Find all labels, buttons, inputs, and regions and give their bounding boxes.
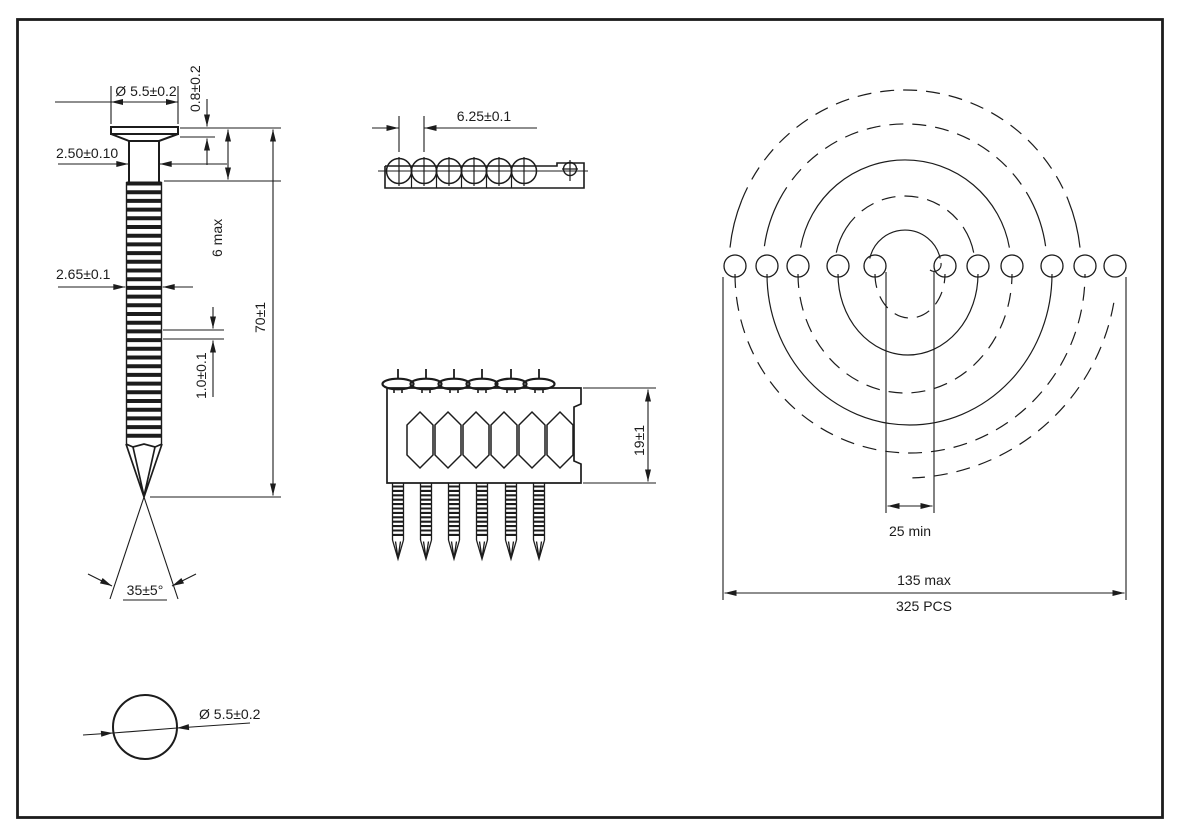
dim-head-height: 0.8±0.2 xyxy=(187,65,203,112)
coil-nail-head xyxy=(724,255,746,277)
nail-point-side xyxy=(534,540,545,559)
nail-rings-side xyxy=(506,487,517,535)
head-dia-line xyxy=(113,728,177,733)
strip-band-outline xyxy=(385,163,584,188)
nail-point xyxy=(126,444,162,497)
coil-winding-arc xyxy=(870,230,940,258)
coil-winding-arc xyxy=(798,274,1012,393)
dim-nail-pitch: 6.25±0.1 xyxy=(457,108,512,124)
dim-ring-diameter: 2.65±0.1 xyxy=(56,266,111,282)
pitch-extensions xyxy=(399,116,424,152)
dim-ring-pitch: 1.0±0.1 xyxy=(193,352,209,399)
nail-side-view: Ø 5.5±0.2 0.8±0.2 2.50±0.10 6 max 2.65±0… xyxy=(55,65,281,600)
coil-winding-arc xyxy=(846,196,963,228)
coil-winding-arc xyxy=(836,228,846,253)
nail-point-side xyxy=(477,540,488,559)
strip-body-outline xyxy=(387,388,581,483)
dim-coil-inner: 25 min xyxy=(889,523,931,539)
dim-shank-diameter: 2.50±0.10 xyxy=(56,145,118,161)
drawing-border xyxy=(18,20,1163,818)
nail-point-side xyxy=(393,540,404,559)
dim-piece-count: 325 PCS xyxy=(896,598,952,614)
coil-nail-head xyxy=(787,255,809,277)
dim-head-diameter-top: Ø 5.5±0.2 xyxy=(199,706,261,722)
nail-rings-side xyxy=(449,487,460,535)
strip-side-nails xyxy=(383,369,574,559)
strip-slot xyxy=(491,412,517,468)
nail-point-side xyxy=(449,540,460,559)
nail-point-side xyxy=(506,540,517,559)
dim-strip-height: 19±1 xyxy=(631,425,647,456)
angle-arrow-left xyxy=(88,574,112,586)
strip-top-nails xyxy=(387,157,537,188)
strip-slot xyxy=(519,412,545,468)
coil-outer-extensions xyxy=(723,277,1126,600)
dim-overall-length: 70±1 xyxy=(252,302,268,333)
nail-point-side xyxy=(421,540,432,559)
coil-inner-hook xyxy=(930,263,941,271)
coil-nail-head xyxy=(827,255,849,277)
coil-winding-arc xyxy=(730,200,742,248)
coil-winding-arc xyxy=(764,199,779,246)
coil-nail-head xyxy=(756,255,778,277)
strip-slot xyxy=(463,412,489,468)
coil-winding-arc xyxy=(742,90,1068,200)
coil-winding-arc xyxy=(735,274,1085,453)
dim-head-diameter: Ø 5.5±0.2 xyxy=(115,83,177,99)
strip-slot xyxy=(547,412,573,468)
nail-shank-outline xyxy=(129,141,159,182)
coil-winding-arc xyxy=(838,274,978,355)
dim-smooth-length: 6 max xyxy=(209,219,225,257)
nail-head-top-view: Ø 5.5±0.2 xyxy=(83,695,261,759)
strip-slot xyxy=(407,412,433,468)
nail-rings-side xyxy=(421,487,432,535)
coil-view: 25 min 135 max 325 PCS xyxy=(723,90,1126,614)
strip-side-view: 19±1 xyxy=(383,369,657,559)
coil-winding-arc xyxy=(964,228,974,253)
angle-arrow-right xyxy=(172,574,196,586)
coil-nail-head xyxy=(934,255,956,277)
nail-head-underside xyxy=(111,134,178,141)
coil-nail-head xyxy=(1104,255,1126,277)
strip-top-view: 6.25±0.1 xyxy=(372,108,588,188)
coil-nail-head xyxy=(1041,255,1063,277)
technical-drawing: Ø 5.5±0.2 0.8±0.2 2.50±0.10 6 max 2.65±0… xyxy=(0,0,1185,836)
dim-coil-outer: 135 max xyxy=(897,572,951,588)
coil-winding-arc xyxy=(912,303,1113,478)
coil-nail-head xyxy=(1001,255,1023,277)
coil-nail-head xyxy=(967,255,989,277)
nail-head-outline xyxy=(111,127,178,134)
coil-winding-arc xyxy=(1030,199,1045,246)
coil-winding-arc xyxy=(1068,200,1080,248)
coil-winding-arc xyxy=(767,274,1052,425)
head-dia-arrow-left xyxy=(83,733,113,735)
nail-rings-side xyxy=(393,487,404,535)
head-circle xyxy=(113,695,177,759)
coil-nail-head xyxy=(864,255,886,277)
ring-shank-rings xyxy=(127,184,162,436)
coil-nail-head xyxy=(1074,255,1096,277)
coil-winding-arc xyxy=(801,160,1010,248)
coil-windings xyxy=(724,90,1126,478)
dim-point-angle: 35±5° xyxy=(127,582,164,598)
strip-slot xyxy=(435,412,461,468)
head-dia-arrow-right xyxy=(177,723,250,728)
coil-winding-arc xyxy=(780,124,1031,199)
nail-rings-side xyxy=(477,487,488,535)
nail-rings-side xyxy=(534,487,545,535)
